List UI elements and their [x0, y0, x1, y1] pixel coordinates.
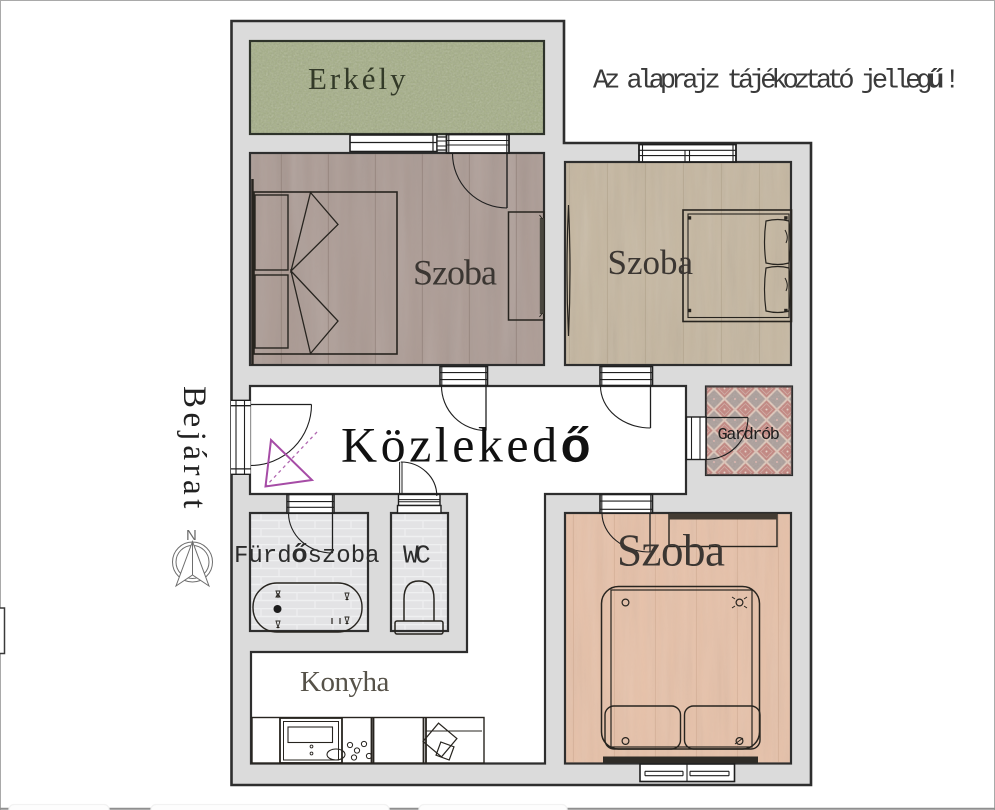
- svg-text:Szoba: Szoba: [413, 253, 497, 293]
- svg-text:Bejárat: Bejárat: [176, 386, 212, 513]
- svg-text:Közlekedő: Közlekedő: [341, 417, 591, 473]
- svg-text:Az alaprajz tájékoztató jelleg: Az alaprajz tájékoztató jellegű!: [593, 64, 955, 97]
- svg-text:Erkély: Erkély: [308, 61, 409, 96]
- svg-text:Konyha: Konyha: [300, 666, 389, 698]
- svg-text:WC: WC: [403, 541, 430, 571]
- svg-text:Gardrób: Gardrób: [718, 426, 780, 445]
- svg-text:Fürdőszoba: Fürdőszoba: [234, 538, 380, 570]
- svg-text:Szoba: Szoba: [617, 526, 725, 576]
- svg-text:Szoba: Szoba: [608, 243, 694, 282]
- svg-text:N: N: [186, 527, 197, 544]
